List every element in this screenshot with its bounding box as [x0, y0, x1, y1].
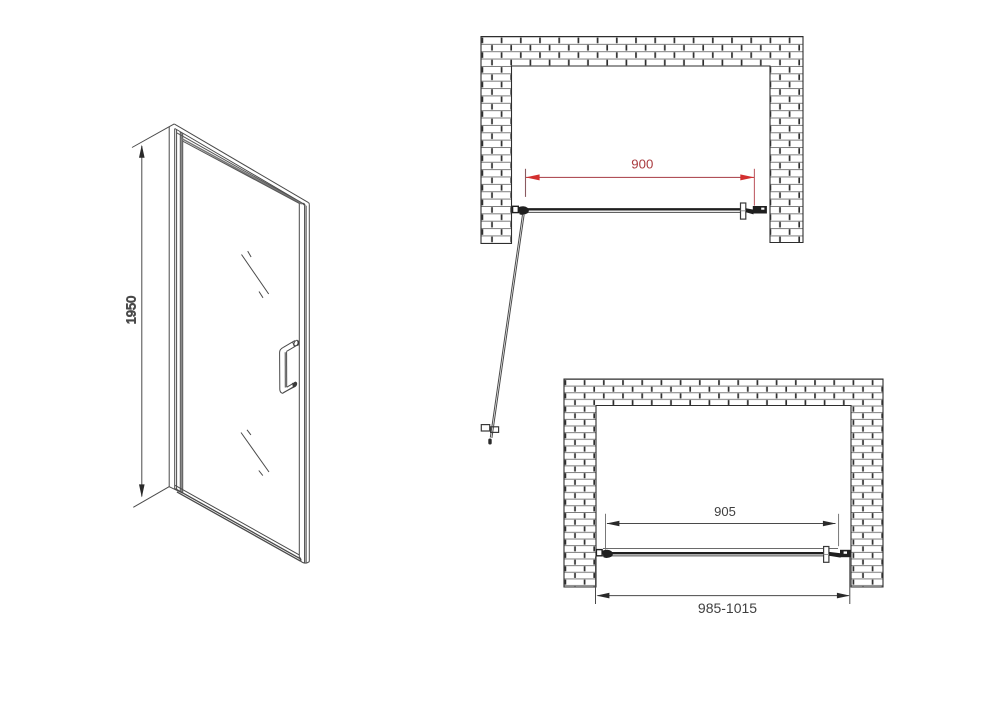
- svg-text:905: 905: [714, 504, 736, 519]
- svg-text:900: 900: [631, 157, 653, 172]
- svg-text:985-1015: 985-1015: [698, 600, 757, 616]
- svg-text:1950: 1950: [123, 296, 138, 324]
